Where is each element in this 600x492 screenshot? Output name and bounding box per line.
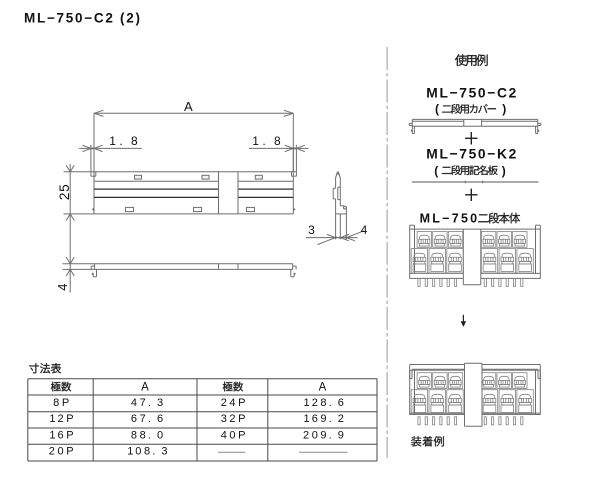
svg-text:ML−750−C2 (2): ML−750−C2 (2) [24, 10, 140, 25]
svg-text:(: ( [434, 164, 438, 178]
svg-text:25: 25 [57, 183, 72, 200]
svg-text:88.0: 88.0 [131, 429, 163, 441]
svg-text:67.6: 67.6 [131, 413, 163, 425]
svg-text:ML−750−C2: ML−750−C2 [426, 86, 516, 101]
svg-text:4: 4 [361, 223, 368, 237]
svg-text:3: 3 [308, 223, 315, 237]
svg-text:): ) [502, 102, 506, 116]
svg-text:A: A [184, 99, 193, 114]
svg-text:32P: 32P [221, 413, 246, 425]
svg-text:8P: 8P [53, 397, 69, 409]
svg-text:A: A [319, 382, 327, 394]
svg-text:A: A [141, 382, 149, 394]
svg-text:16P: 16P [49, 429, 73, 441]
svg-text:20P: 20P [49, 445, 74, 457]
svg-text:40P: 40P [221, 429, 246, 441]
svg-text:47.3: 47.3 [131, 397, 163, 409]
svg-text:ML−750−K2: ML−750−K2 [426, 147, 516, 162]
svg-text:24P: 24P [221, 397, 246, 409]
svg-text:108.3: 108.3 [127, 445, 167, 457]
svg-text:169.2: 169.2 [304, 413, 344, 425]
svg-text:4: 4 [55, 284, 70, 291]
svg-text:): ) [502, 164, 506, 178]
svg-text:128.6: 128.6 [304, 397, 344, 409]
svg-text:(: ( [435, 102, 439, 116]
svg-text:12P: 12P [49, 413, 73, 425]
